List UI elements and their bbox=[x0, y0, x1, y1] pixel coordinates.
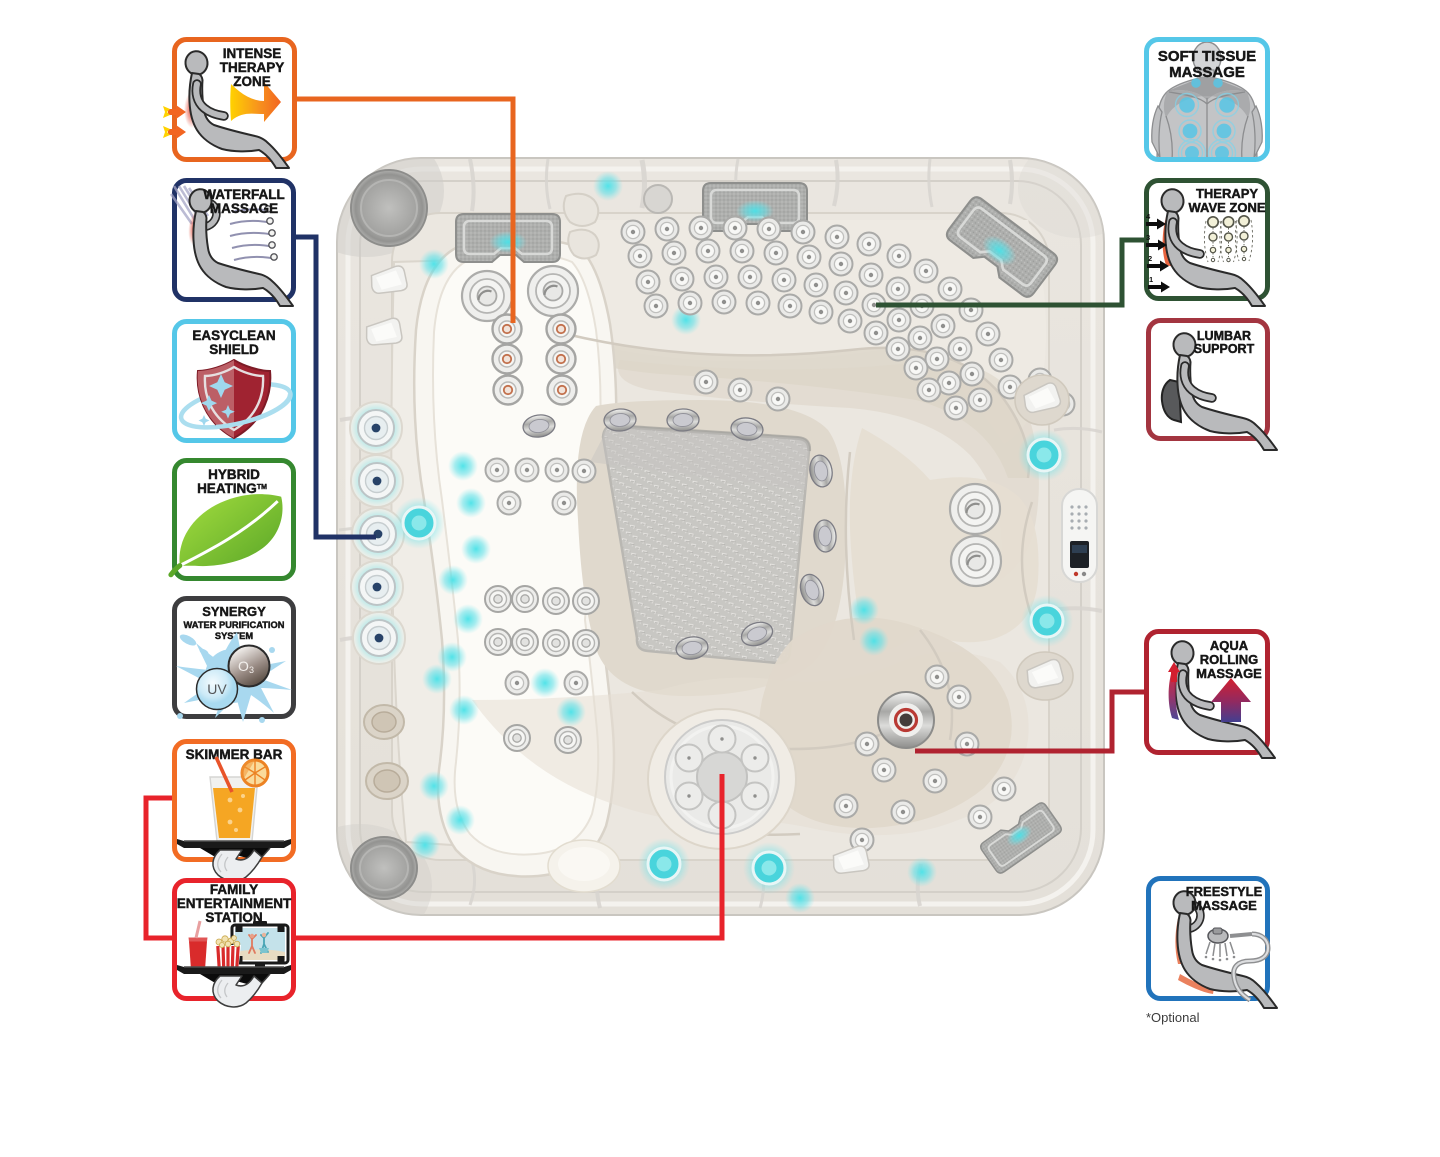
svg-text:HYBRID: HYBRID bbox=[208, 467, 260, 482]
svg-text:MASSAGE: MASSAGE bbox=[1169, 64, 1245, 81]
svg-text:MASSAGE: MASSAGE bbox=[1196, 666, 1262, 681]
svg-text:WATERFALL: WATERFALL bbox=[203, 187, 285, 202]
svg-text:ROLLING: ROLLING bbox=[1200, 652, 1259, 667]
svg-text:FREESTYLE: FREESTYLE bbox=[1186, 884, 1263, 899]
svg-text:3: 3 bbox=[1146, 233, 1150, 242]
svg-text:SHIELD: SHIELD bbox=[209, 342, 259, 357]
svg-text:WAVE ZONE: WAVE ZONE bbox=[1188, 200, 1265, 215]
svg-text:THERAPY: THERAPY bbox=[220, 60, 285, 75]
svg-text:SOFT TISSUE: SOFT TISSUE bbox=[1158, 48, 1256, 65]
svg-text:1: 1 bbox=[1149, 275, 1153, 284]
svg-text:HEATINGTM: HEATINGTM bbox=[197, 481, 267, 496]
svg-text:ZONE: ZONE bbox=[233, 74, 271, 89]
svg-text:SYNERGY: SYNERGY bbox=[202, 604, 266, 619]
svg-text:2: 2 bbox=[1148, 254, 1152, 263]
svg-text:*Optional: *Optional bbox=[1146, 1010, 1200, 1025]
svg-text:SUPPORT: SUPPORT bbox=[1194, 342, 1255, 356]
svg-text:FAMILY: FAMILY bbox=[210, 882, 258, 897]
svg-text:INTENSE: INTENSE bbox=[223, 46, 282, 61]
svg-text:AQUA: AQUA bbox=[1210, 638, 1249, 653]
svg-text:EASYCLEAN: EASYCLEAN bbox=[192, 328, 275, 343]
svg-text:MASSAGE: MASSAGE bbox=[210, 201, 278, 216]
svg-text:THERAPY: THERAPY bbox=[1196, 186, 1258, 201]
svg-text:ENTERTAINMENT: ENTERTAINMENT bbox=[177, 896, 292, 911]
svg-text:SKIMMER BAR: SKIMMER BAR bbox=[186, 747, 283, 762]
svg-text:LUMBAR: LUMBAR bbox=[1197, 329, 1251, 343]
svg-text:UV: UV bbox=[207, 681, 227, 697]
svg-text:MASSAGE: MASSAGE bbox=[1191, 898, 1257, 913]
svg-text:WATER PURIFICATION: WATER PURIFICATION bbox=[184, 620, 285, 630]
